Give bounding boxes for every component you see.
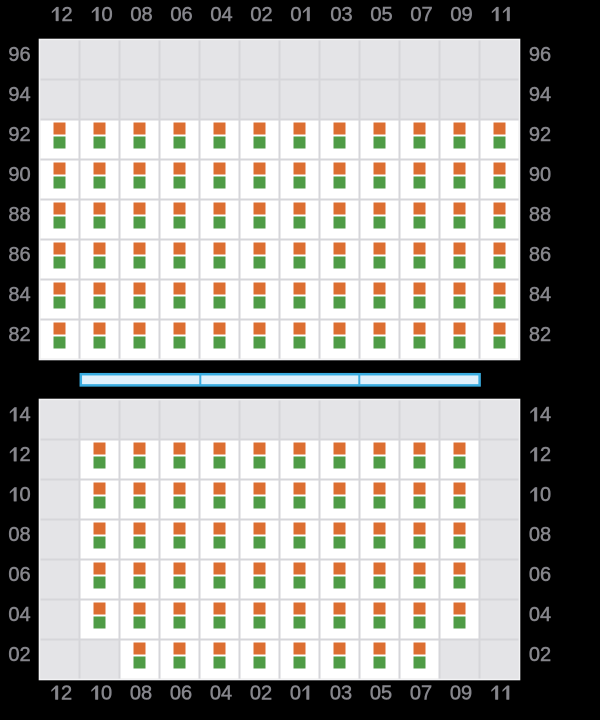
svg-text:6: 6 (181, 683, 192, 705)
svg-text:0: 0 (529, 564, 540, 586)
svg-text:8: 8 (540, 204, 551, 226)
svg-text:8: 8 (141, 4, 152, 26)
svg-text:6: 6 (181, 4, 192, 26)
svg-text:0: 0 (130, 683, 141, 705)
svg-text:4: 4 (540, 284, 551, 306)
svg-text:0: 0 (250, 683, 261, 705)
svg-text:0: 0 (370, 4, 381, 26)
svg-text:8: 8 (529, 324, 540, 346)
svg-text:8: 8 (8, 324, 19, 346)
svg-text:0: 0 (19, 164, 30, 186)
svg-text:9: 9 (8, 44, 19, 66)
svg-text:4: 4 (19, 84, 30, 106)
svg-text:0: 0 (290, 4, 301, 26)
svg-text:0: 0 (170, 4, 181, 26)
svg-text:0: 0 (8, 604, 19, 626)
svg-text:2: 2 (19, 444, 30, 466)
svg-text:0: 0 (8, 564, 19, 586)
svg-text:9: 9 (529, 124, 540, 146)
svg-text:4: 4 (19, 284, 30, 306)
svg-text:2: 2 (61, 683, 72, 705)
svg-text:6: 6 (19, 564, 30, 586)
svg-text:0: 0 (410, 683, 421, 705)
svg-text:0: 0 (8, 524, 19, 546)
svg-text:4: 4 (19, 404, 30, 426)
svg-text:2: 2 (261, 683, 272, 705)
svg-text:9: 9 (461, 4, 472, 26)
svg-text:2: 2 (19, 124, 30, 146)
svg-text:0: 0 (540, 164, 551, 186)
svg-text:0: 0 (250, 4, 261, 26)
svg-text:6: 6 (19, 244, 30, 266)
svg-text:0: 0 (210, 4, 221, 26)
svg-text:9: 9 (8, 84, 19, 106)
svg-text:7: 7 (421, 4, 432, 26)
svg-text:0: 0 (19, 484, 30, 506)
svg-text:0: 0 (101, 683, 112, 705)
svg-text:0: 0 (210, 683, 221, 705)
svg-text:4: 4 (540, 604, 551, 626)
svg-text:0: 0 (529, 604, 540, 626)
svg-text:8: 8 (529, 204, 540, 226)
svg-text:8: 8 (529, 244, 540, 266)
svg-text:6: 6 (540, 244, 551, 266)
svg-text:4: 4 (19, 604, 30, 626)
svg-text:2: 2 (540, 644, 551, 666)
svg-text:0: 0 (450, 4, 461, 26)
svg-text:0: 0 (529, 644, 540, 666)
svg-text:0: 0 (130, 4, 141, 26)
svg-text:4: 4 (540, 404, 551, 426)
svg-text:8: 8 (19, 524, 30, 546)
svg-text:2: 2 (19, 324, 30, 346)
svg-text:0: 0 (330, 4, 341, 26)
svg-text:6: 6 (540, 44, 551, 66)
svg-text:0: 0 (540, 484, 551, 506)
svg-text:8: 8 (529, 284, 540, 306)
svg-text:2: 2 (540, 444, 551, 466)
svg-text:4: 4 (540, 84, 551, 106)
svg-text:2: 2 (61, 4, 72, 26)
svg-text:9: 9 (529, 164, 540, 186)
svg-text:0: 0 (410, 4, 421, 26)
svg-text:9: 9 (8, 124, 19, 146)
svg-text:0: 0 (101, 4, 112, 26)
svg-text:9: 9 (461, 683, 472, 705)
svg-text:2: 2 (19, 644, 30, 666)
svg-text:4: 4 (221, 683, 232, 705)
svg-text:6: 6 (19, 44, 30, 66)
svg-text:0: 0 (450, 683, 461, 705)
svg-text:0: 0 (370, 683, 381, 705)
svg-text:9: 9 (8, 164, 19, 186)
svg-text:0: 0 (529, 524, 540, 546)
svg-text:2: 2 (540, 324, 551, 346)
svg-text:6: 6 (540, 564, 551, 586)
svg-text:8: 8 (8, 284, 19, 306)
svg-text:7: 7 (421, 683, 432, 705)
svg-text:2: 2 (540, 124, 551, 146)
svg-text:3: 3 (341, 4, 352, 26)
svg-text:2: 2 (261, 4, 272, 26)
svg-text:8: 8 (8, 244, 19, 266)
svg-text:4: 4 (221, 4, 232, 26)
svg-text:0: 0 (170, 683, 181, 705)
svg-text:0: 0 (290, 683, 301, 705)
svg-text:5: 5 (381, 683, 392, 705)
svg-text:9: 9 (529, 84, 540, 106)
svg-text:8: 8 (19, 204, 30, 226)
svg-text:8: 8 (8, 204, 19, 226)
svg-text:8: 8 (141, 683, 152, 705)
svg-text:9: 9 (529, 44, 540, 66)
svg-text:0: 0 (330, 683, 341, 705)
svg-text:3: 3 (341, 683, 352, 705)
svg-text:8: 8 (540, 524, 551, 546)
svg-text:5: 5 (381, 4, 392, 26)
svg-text:0: 0 (8, 644, 19, 666)
